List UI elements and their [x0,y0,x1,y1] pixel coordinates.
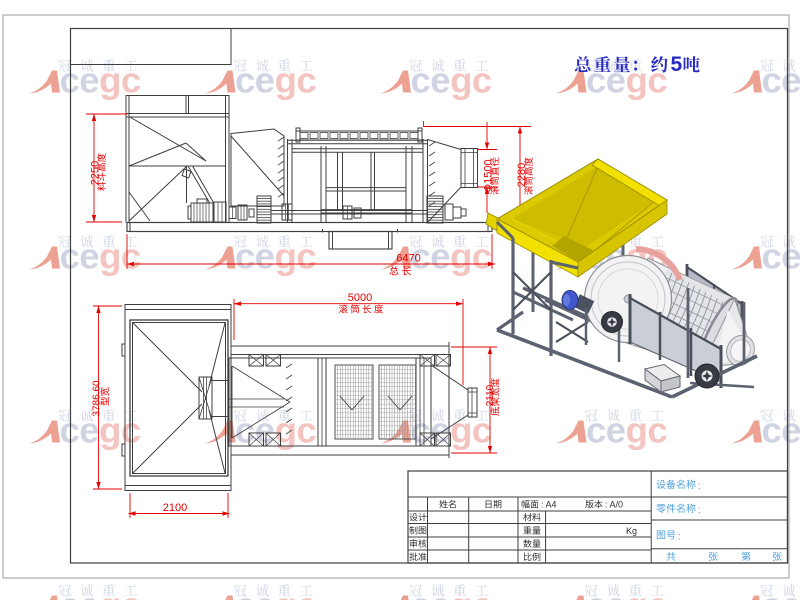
svg-text:cegc: cegc [411,410,492,451]
svg-text:cegc: cegc [411,236,492,277]
svg-text:: A/0: : A/0 [605,500,623,510]
svg-text:cegc: cegc [762,236,800,277]
svg-text:cegc: cegc [762,585,800,600]
svg-text::: : [698,505,701,516]
svg-text:cegc: cegc [60,60,141,101]
svg-text:cegc: cegc [586,585,667,600]
svg-text:3786.60: 3786.60 [92,380,103,417]
svg-text:5000: 5000 [348,292,372,304]
svg-text:: A4: : A4 [541,500,557,510]
svg-text:2100: 2100 [163,502,187,514]
svg-text:cegc: cegc [235,236,316,277]
svg-text:cegc: cegc [411,60,492,101]
svg-text:cegc: cegc [60,585,141,600]
svg-text:Kg: Kg [626,526,637,536]
svg-text:cegc: cegc [235,410,316,451]
svg-text:5: 5 [671,53,683,76]
svg-text:cegc: cegc [235,585,316,600]
svg-text:cegc: cegc [762,410,800,451]
svg-text::: : [698,481,701,492]
svg-text:cegc: cegc [235,60,316,101]
svg-text:6470: 6470 [396,253,420,265]
svg-text:2280: 2280 [516,163,528,187]
svg-text:cegc: cegc [762,60,800,101]
svg-text::: : [678,532,681,543]
svg-text:cegc: cegc [411,585,492,600]
svg-text:cegc: cegc [60,236,141,277]
svg-text:cegc: cegc [586,410,667,451]
